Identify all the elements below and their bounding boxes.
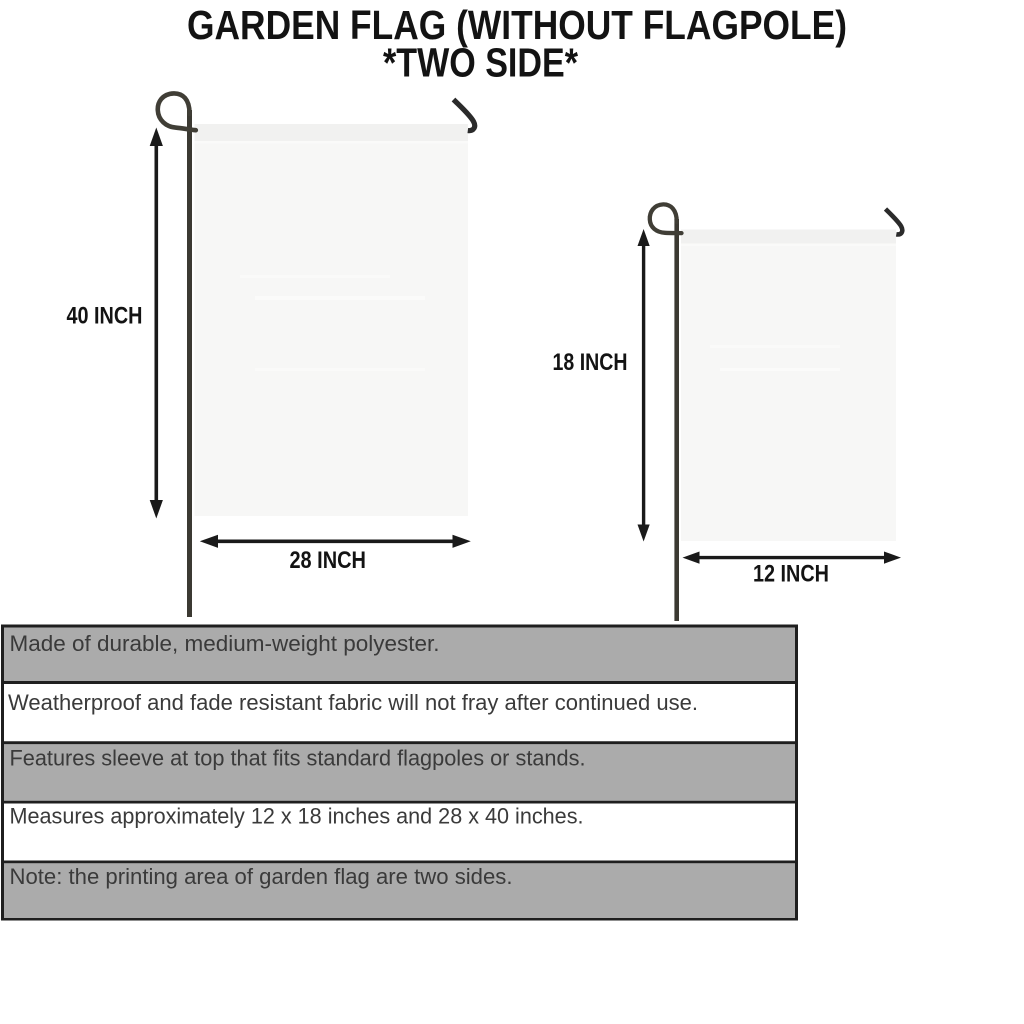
svg-text:40 INCH: 40 INCH bbox=[67, 303, 143, 330]
svg-text:*TWO SIDE*: *TWO SIDE* bbox=[383, 40, 578, 86]
svg-text:Measures approximately 12 x 18: Measures approximately 12 x 18 inches an… bbox=[10, 804, 584, 829]
svg-text:28 INCH: 28 INCH bbox=[289, 547, 366, 574]
svg-text:Note: the printing area of gar: Note: the printing area of garden flag a… bbox=[10, 864, 513, 889]
svg-text:18 INCH: 18 INCH bbox=[553, 349, 628, 376]
svg-text:Features sleeve at top that fi: Features sleeve at top that fits standar… bbox=[10, 746, 586, 771]
svg-text:12 INCH: 12 INCH bbox=[753, 561, 829, 588]
svg-text:Weatherproof and fade resistan: Weatherproof and fade resistant fabric w… bbox=[8, 690, 698, 715]
svg-text:Made of durable, medium-weight: Made of durable, medium-weight polyester… bbox=[10, 631, 440, 656]
